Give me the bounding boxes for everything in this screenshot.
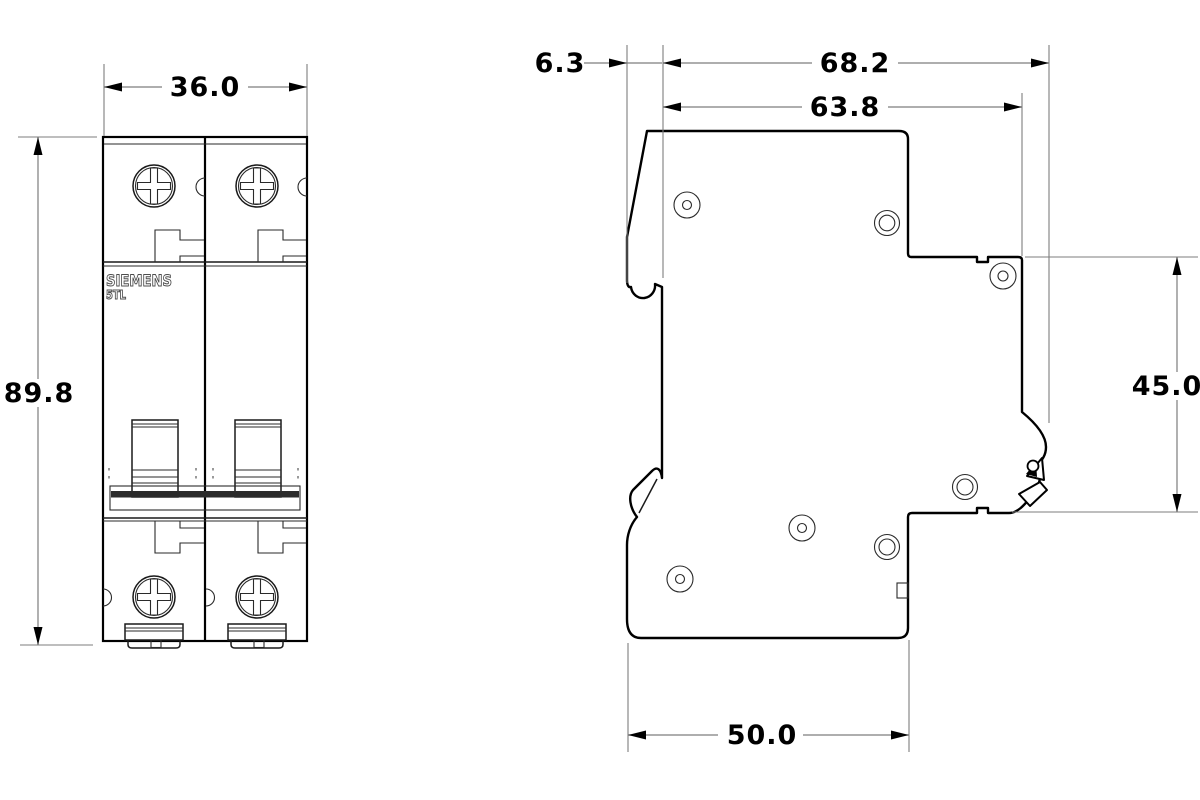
clamp [228, 624, 286, 648]
dimension-side-offset: 6.3 [535, 45, 662, 283]
breaker-body-side [627, 131, 1046, 638]
side-tab [897, 583, 908, 598]
rivet-hole [990, 263, 1016, 289]
din-clip-flag [639, 479, 657, 513]
rivet-hole [789, 515, 815, 541]
screw-head [236, 576, 278, 618]
clamp [125, 624, 183, 648]
dim-label-side-offset: 6.3 [535, 48, 586, 79]
terminal-steps [155, 230, 306, 553]
dim-label-din-height: 45.0 [1132, 371, 1200, 402]
drawing-svg: SIEMENS 5TL [0, 0, 1200, 800]
dim-label-base-depth: 50.0 [727, 720, 798, 751]
dimension-body-depth: 63.8 [663, 92, 1022, 256]
screw-head [133, 165, 175, 207]
dim-label-front-height: 89.8 [4, 378, 75, 409]
rivet-hole [667, 566, 693, 592]
dimension-front-width: 36.0 [104, 64, 307, 136]
rivet-hole [674, 192, 700, 218]
dimension-base-depth: 50.0 [628, 640, 909, 752]
din-rail-hook [1019, 458, 1047, 506]
technical-drawing: SIEMENS 5TL [0, 0, 1200, 800]
side-view [627, 131, 1047, 638]
dim-label-total-depth: 68.2 [820, 48, 891, 79]
dimension-front-height: 89.8 [0, 137, 97, 645]
rivet-holes [667, 192, 1016, 592]
screw-head [133, 576, 175, 618]
screw-head [236, 165, 278, 207]
rivet-hole [875, 535, 900, 560]
front-view: SIEMENS 5TL [103, 137, 307, 648]
dim-label-body-depth: 63.8 [810, 92, 881, 123]
dim-label-front-width: 36.0 [170, 72, 241, 103]
model-label: 5TL [106, 288, 126, 302]
rivet-hole [875, 211, 900, 236]
rivet-hole [953, 475, 978, 500]
